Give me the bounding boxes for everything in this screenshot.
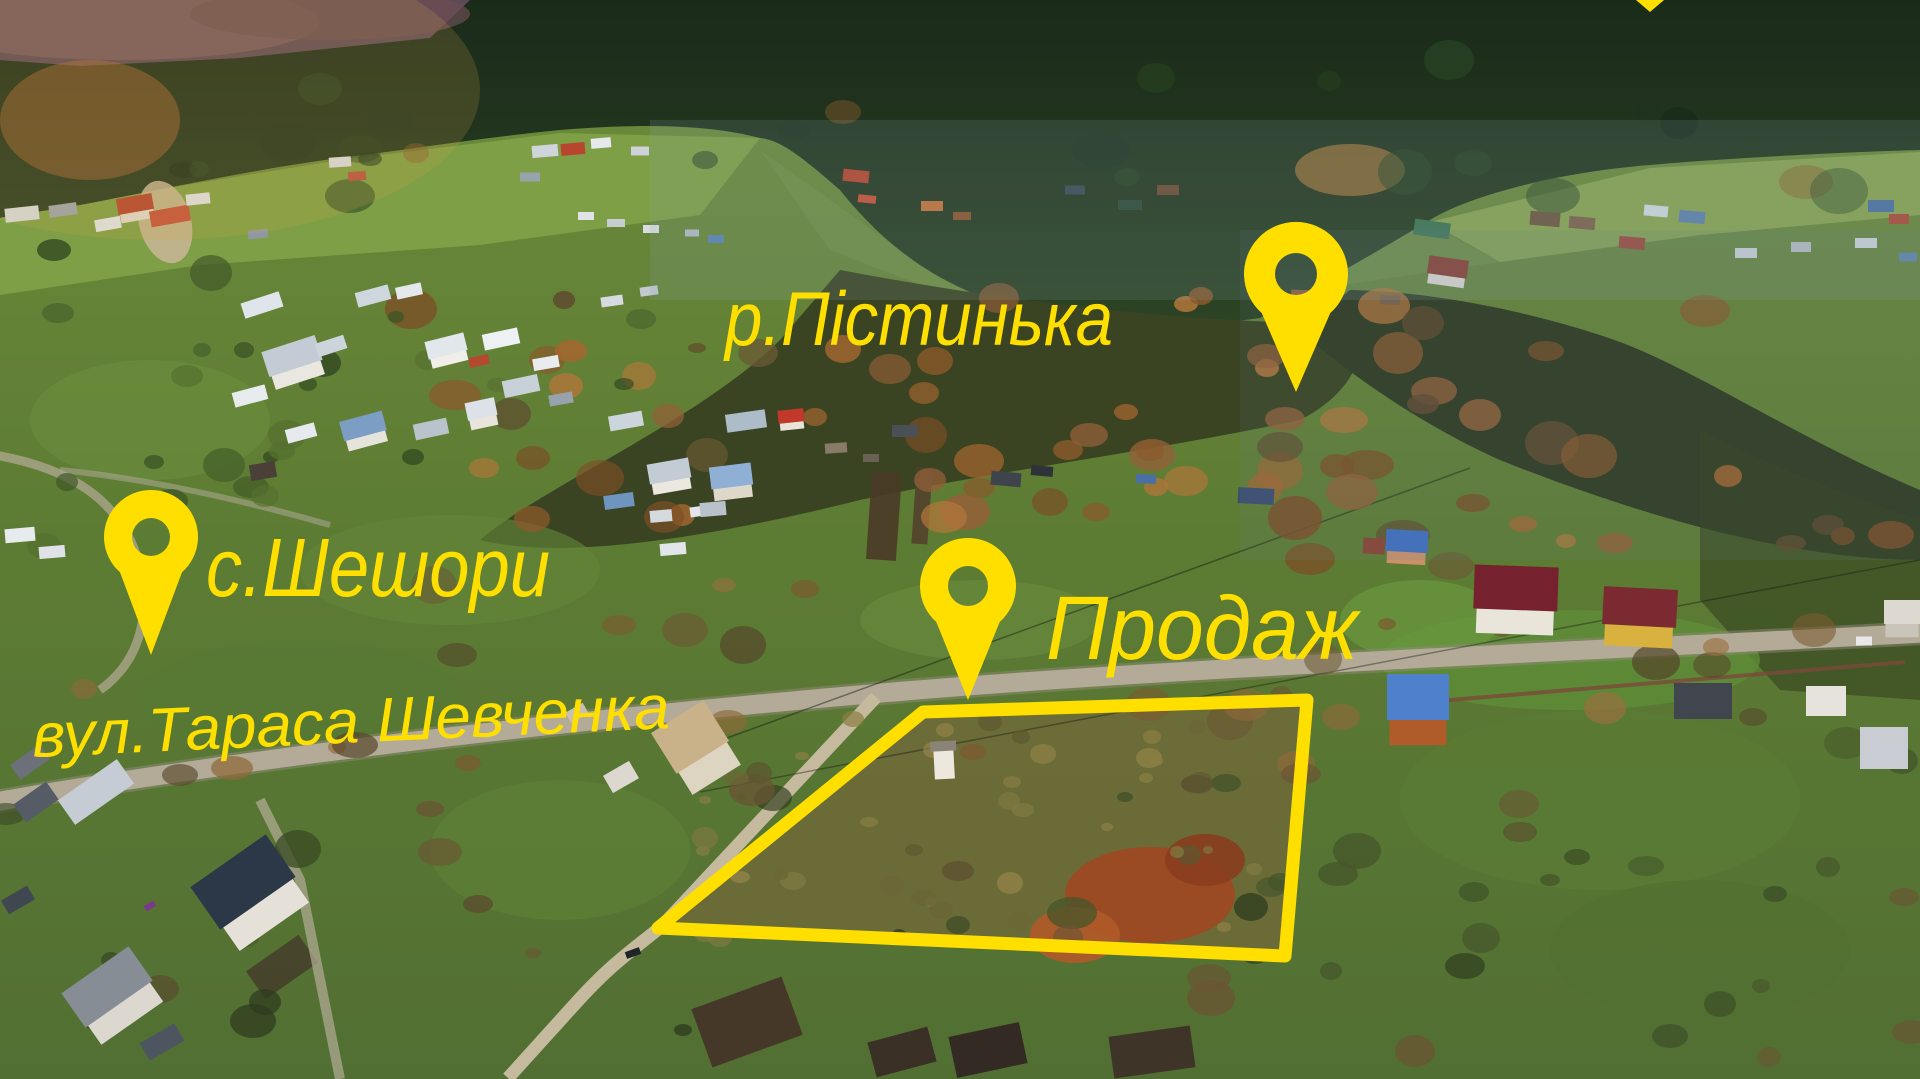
annotated-aerial-photo: р.Пістинька с.Шешори вул.Тараса Шевченка… [0, 0, 1920, 1079]
label-sale: Продаж [1046, 579, 1362, 679]
label-village: с.Шешори [206, 521, 550, 614]
aerial-photo: р.Пістинька с.Шешори вул.Тараса Шевченка… [0, 0, 1920, 1079]
label-river: р.Пістинька [723, 277, 1113, 362]
